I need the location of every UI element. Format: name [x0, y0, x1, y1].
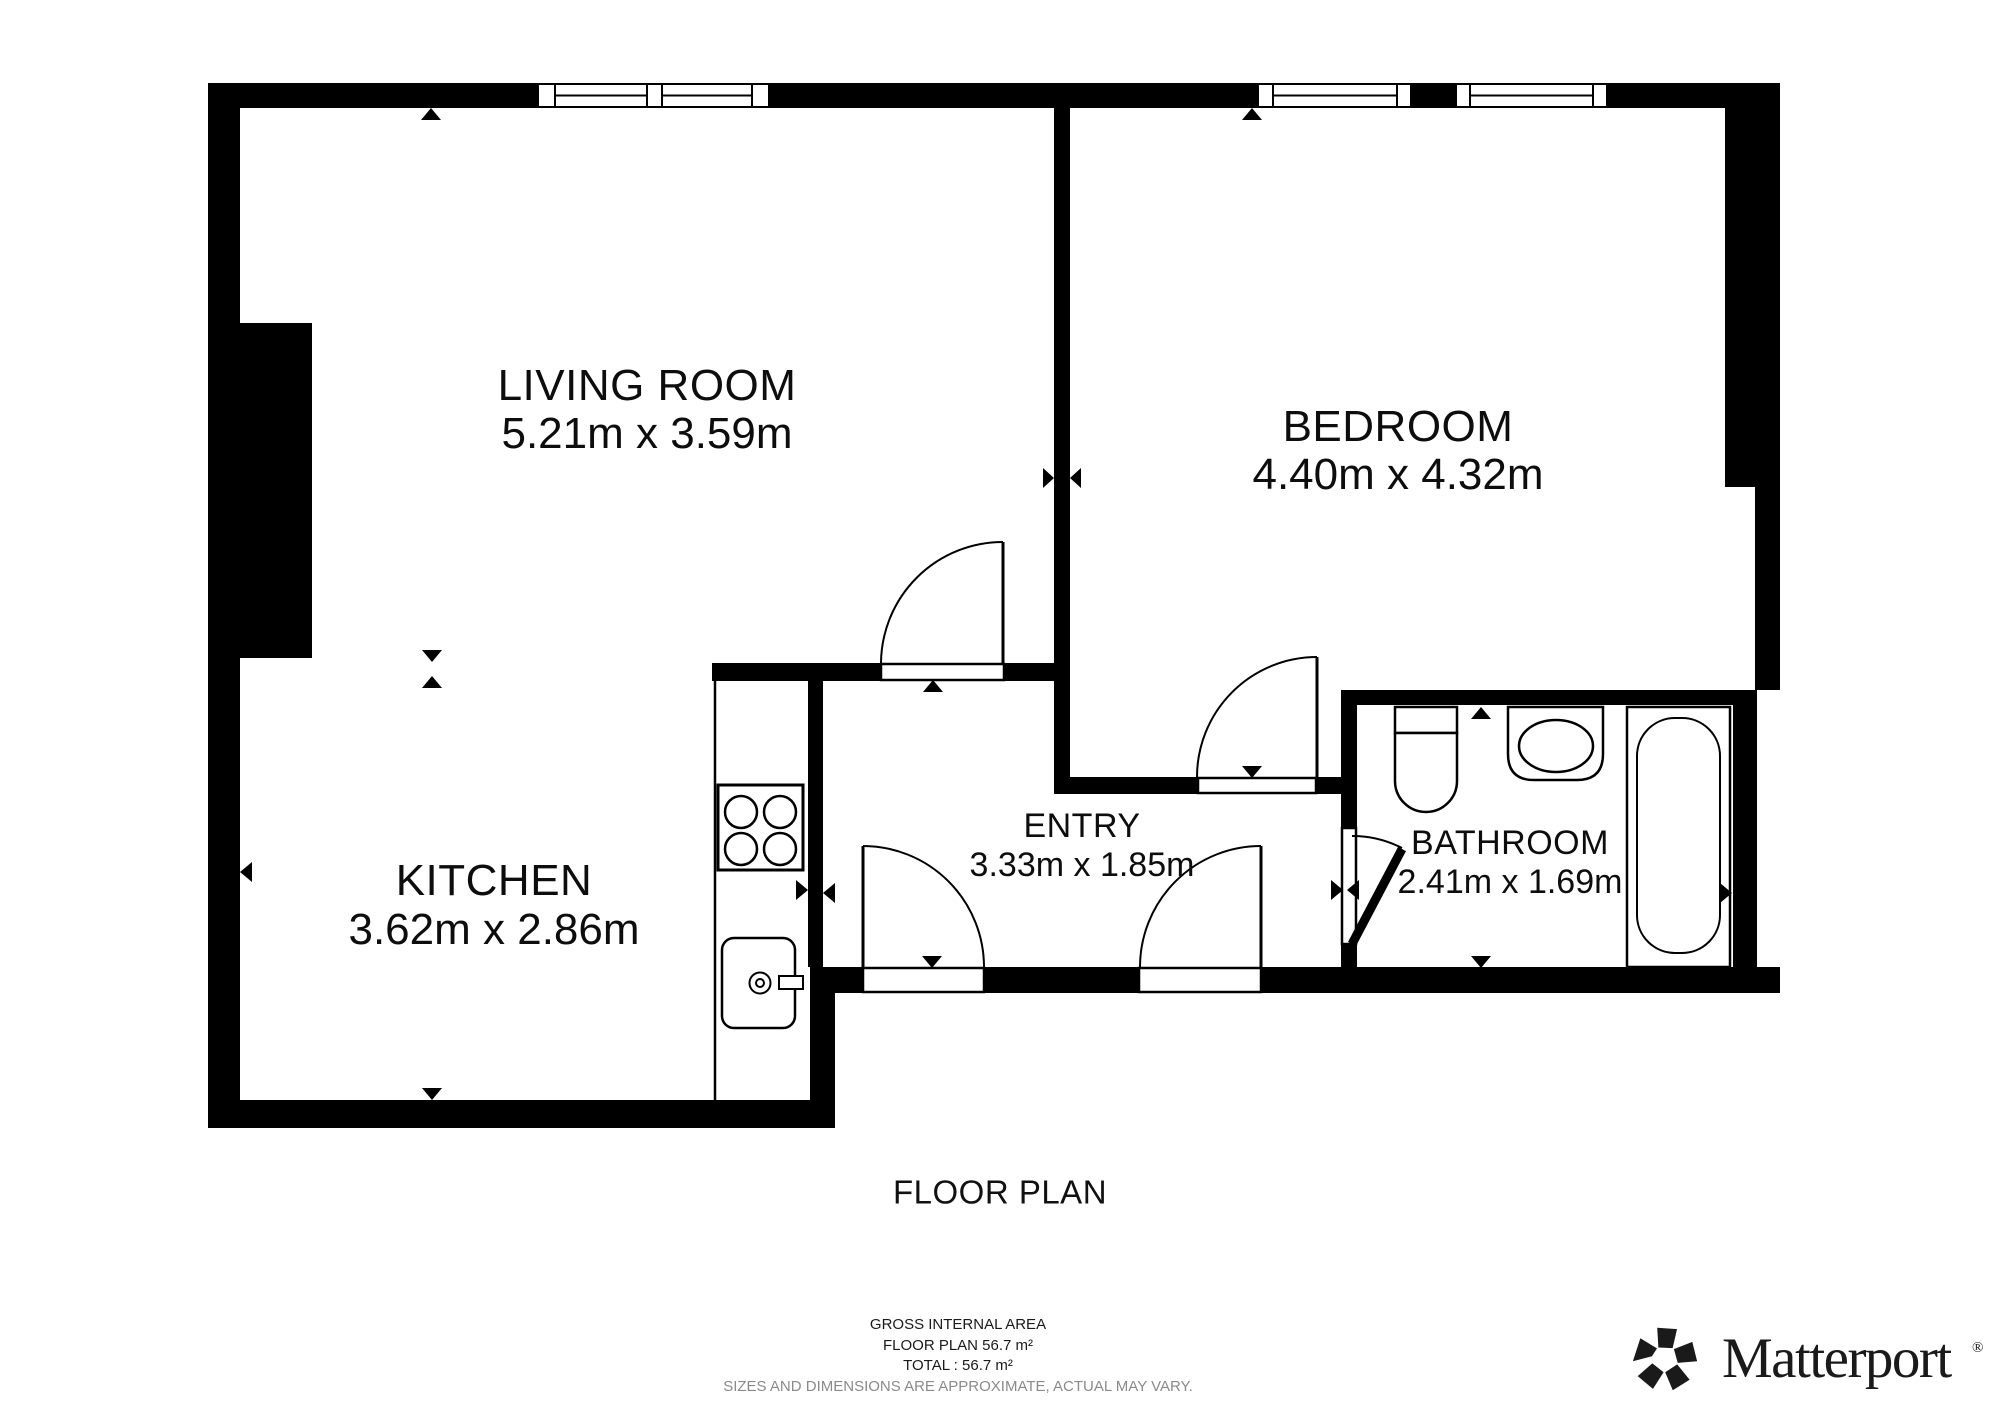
arrow-bathroom-up [1471, 707, 1491, 719]
wall-bathroom-top [1341, 690, 1757, 705]
wall-right-lower [1733, 690, 1757, 993]
wall-left-pier [208, 323, 312, 658]
arrow-living-right [1043, 468, 1054, 488]
living-room-door [881, 542, 1004, 680]
bedroom-window-1 [1258, 84, 1411, 107]
room-dims-kitchen: 3.62m x 2.86m [348, 908, 639, 952]
floor-plan-area-value: FLOOR PLAN 56.7 m² [723, 1336, 1193, 1357]
kitchen-counter [714, 681, 808, 1100]
room-dims-bedroom: 4.40m x 4.32m [1252, 453, 1543, 497]
arrow-living-down [422, 650, 442, 662]
registered-trademark-symbol: ® [1972, 1340, 1983, 1357]
total-area-value: TOTAL : 56.7 m² [723, 1356, 1193, 1377]
living-room-window [538, 84, 769, 107]
kitchen-fixtures [714, 681, 808, 1100]
kitchen-sink [722, 938, 803, 1028]
page-title: FLOOR PLAN [893, 1176, 1107, 1209]
arrow-entry-down [922, 956, 942, 968]
room-dims-bathroom: 2.41m x 1.69m [1398, 865, 1623, 899]
entry-door-left [863, 846, 984, 992]
wall-kitchen-entry [808, 681, 823, 967]
wall-right-middle [1755, 487, 1780, 690]
room-label-entry: ENTRY [1023, 809, 1140, 843]
arrow-entry-left [823, 883, 835, 903]
area-summary: GROSS INTERNAL AREA FLOOR PLAN 56.7 m² T… [723, 1315, 1193, 1397]
room-label-living-room: LIVING ROOM [498, 364, 797, 408]
arrow-kitchen-down [422, 1088, 442, 1100]
arrow-bedroom-down [1242, 766, 1262, 778]
bathroom-sink [1508, 707, 1603, 780]
room-dims-entry: 3.33m x 1.85m [970, 848, 1195, 882]
bathroom-door [1342, 828, 1402, 944]
matterport-wordmark: Matterport [1722, 1330, 1951, 1387]
matterport-pinwheel-icon [1630, 1322, 1700, 1396]
arrow-entry-up [923, 680, 943, 692]
arrow-kitchen-left [240, 862, 252, 882]
bathtub [1627, 707, 1730, 967]
room-label-bedroom: BEDROOM [1283, 405, 1514, 449]
room-label-bathroom: BATHROOM [1411, 826, 1609, 860]
arrow-kitchen-up [422, 676, 442, 688]
room-label-kitchen: KITCHEN [396, 859, 593, 903]
arrow-bathroom-down [1471, 956, 1491, 968]
gross-internal-area-label: GROSS INTERNAL AREA [723, 1315, 1193, 1336]
doors [863, 542, 1402, 992]
wall-living-bedroom-divider [1054, 108, 1070, 793]
disclaimer-text: SIZES AND DIMENSIONS ARE APPROXIMATE, AC… [723, 1377, 1193, 1398]
bedroom-door [1197, 657, 1317, 793]
toilet [1395, 707, 1457, 812]
wall-right-upper [1725, 83, 1780, 487]
walls [208, 83, 1780, 1128]
arrow-bedroom-up [1242, 108, 1262, 120]
arrow-living-up [421, 108, 441, 120]
room-dims-living-room: 5.21m x 3.59m [501, 412, 792, 456]
stove [718, 785, 803, 870]
matterport-logo: Matterport ® [1630, 1322, 1990, 1402]
bedroom-window-2 [1456, 84, 1607, 107]
wall-kitchen-bottom [208, 1100, 835, 1128]
arrow-bedroom-left [1070, 468, 1081, 488]
floor-plan-page: LIVING ROOM 5.21m x 3.59m BEDROOM 4.40m … [0, 0, 2000, 1414]
